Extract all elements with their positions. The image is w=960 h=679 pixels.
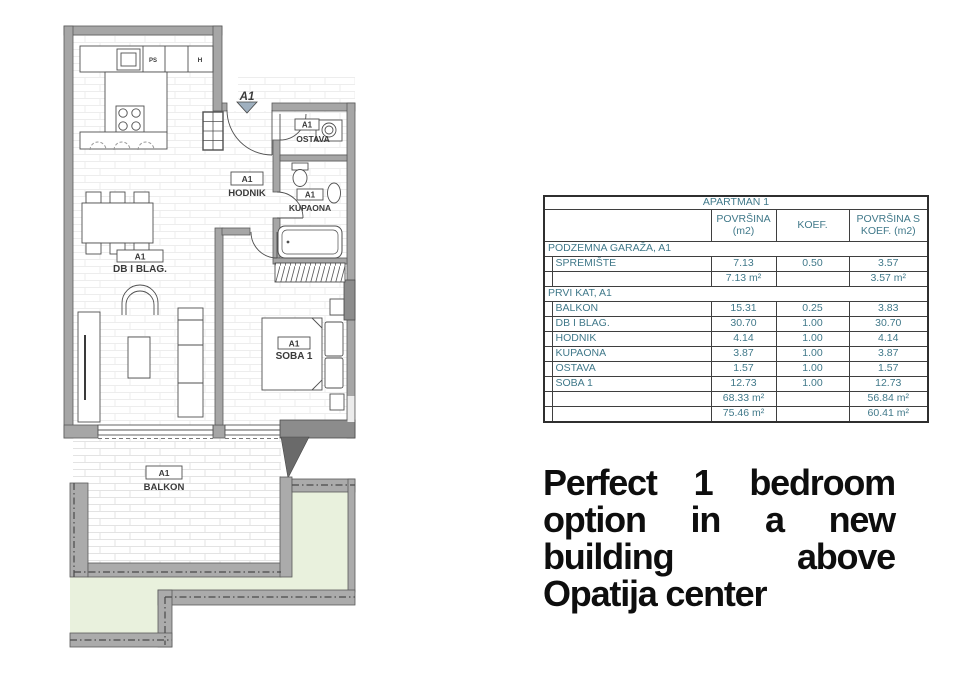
headline-line-3: building above <box>543 538 895 575</box>
gutter-cell <box>544 362 552 377</box>
entrance-marker: A1 <box>237 91 257 113</box>
row-koef: 0.50 <box>776 257 849 272</box>
svg-text:BALKON: BALKON <box>144 482 185 493</box>
subtotal-koef <box>776 272 849 287</box>
row-koef: 1.00 <box>776 317 849 332</box>
header-empty-cell <box>544 210 711 242</box>
floor-plan: PS H <box>0 0 460 679</box>
subtotal-area-koef: 3.57 m² <box>849 272 928 287</box>
subtotal-area-koef: 56.84 m² <box>849 392 928 407</box>
total-name <box>552 407 711 423</box>
row-area: 12.73 <box>711 377 776 392</box>
entry-shelf <box>203 112 223 150</box>
kitchen-ps-label: PS <box>149 58 157 64</box>
right-wall-window <box>348 396 355 422</box>
header-area-line2: (m2) <box>715 226 773 238</box>
row-name: OSTAVA <box>552 362 711 377</box>
header-koef: KOEF. <box>776 210 849 242</box>
svg-text:A1: A1 <box>242 174 253 184</box>
kitchen-island <box>80 132 167 150</box>
subtotal-koef <box>776 392 849 407</box>
row-area-koef: 4.14 <box>849 332 928 347</box>
cooktop <box>116 106 144 133</box>
row-koef: 0.25 <box>776 302 849 317</box>
kitchen-h-label: H <box>198 57 203 64</box>
section-garage-header: PODZEMNA GARAŽA, A1 <box>544 242 928 257</box>
gutter-cell <box>544 317 552 332</box>
svg-text:A1: A1 <box>135 252 146 262</box>
svg-text:A1: A1 <box>305 191 316 200</box>
gutter-cell <box>544 257 552 272</box>
headline-line-1: Perfect 1 bedroom <box>543 464 895 501</box>
row-koef: 1.00 <box>776 347 849 362</box>
row-area: 15.31 <box>711 302 776 317</box>
svg-text:KUPAONA: KUPAONA <box>289 203 331 213</box>
header-area-koef-line1: POVRŠINA S <box>853 214 925 226</box>
row-area-koef: 12.73 <box>849 377 928 392</box>
sofa <box>178 308 203 417</box>
svg-text:HODNIK: HODNIK <box>228 188 266 199</box>
listing-page: PS H <box>0 0 960 679</box>
table-row: KUPAONA 3.87 1.00 3.87 <box>544 347 928 362</box>
gutter-cell <box>544 392 552 407</box>
table-title: APARTMAN 1 <box>544 196 928 210</box>
subtotal-name <box>552 392 711 407</box>
row-koef: 1.00 <box>776 362 849 377</box>
row-name: SOBA 1 <box>552 377 711 392</box>
header-area-koef-line2: KOEF. (m2) <box>853 226 925 238</box>
header-area-koef: POVRŠINA S KOEF. (m2) <box>849 210 928 242</box>
coffee-table <box>128 337 150 378</box>
svg-text:A1: A1 <box>159 468 170 478</box>
apartment-area-table: APARTMAN 1 POVRŠINA (m2) KOEF. POVRŠINA … <box>543 195 929 423</box>
table-title-row: APARTMAN 1 <box>544 196 928 210</box>
headline-line-4: Opatija center <box>543 575 895 612</box>
subtotal-area: 68.33 m² <box>711 392 776 407</box>
header-area-line1: POVRŠINA <box>715 214 773 226</box>
row-name: KUPAONA <box>552 347 711 362</box>
row-name: SPREMIŠTE <box>552 257 711 272</box>
dining-set <box>82 192 153 254</box>
svg-text:A1: A1 <box>289 339 300 349</box>
floor1-subtotal-row: 68.33 m² 56.84 m² <box>544 392 928 407</box>
table-row: DB I BLAG. 30.70 1.00 30.70 <box>544 317 928 332</box>
total-area: 75.46 m² <box>711 407 776 423</box>
table-row: HODNIK 4.14 1.00 4.14 <box>544 332 928 347</box>
row-area-koef: 3.87 <box>849 347 928 362</box>
row-area-koef: 3.83 <box>849 302 928 317</box>
gutter-cell <box>544 302 552 317</box>
headline-line-2: option in a new <box>543 501 895 538</box>
row-area: 1.57 <box>711 362 776 377</box>
wall-wedge <box>281 437 309 478</box>
row-area: 4.14 <box>711 332 776 347</box>
row-area-koef: 30.70 <box>849 317 928 332</box>
svg-text:OSTAVA: OSTAVA <box>296 134 330 144</box>
subtotal-area: 7.13 m² <box>711 272 776 287</box>
balcony-floor <box>73 438 281 565</box>
gutter-cell <box>544 332 552 347</box>
header-area: POVRŠINA (m2) <box>711 210 776 242</box>
row-name: DB I BLAG. <box>552 317 711 332</box>
section-floor1-header-row: PRVI KAT, A1 <box>544 287 928 302</box>
row-name: BALKON <box>552 302 711 317</box>
row-area: 3.87 <box>711 347 776 362</box>
row-koef: 1.00 <box>776 332 849 347</box>
windows <box>98 425 280 435</box>
subtotal-name <box>552 272 711 287</box>
row-area: 30.70 <box>711 317 776 332</box>
bathroom-sink <box>328 183 341 203</box>
table-header-row: POVRŠINA (m2) KOEF. POVRŠINA S KOEF. (m2… <box>544 210 928 242</box>
gutter-cell <box>544 347 552 362</box>
row-area-koef: 3.57 <box>849 257 928 272</box>
total-area-koef: 60.41 m² <box>849 407 928 423</box>
wardrobe <box>275 263 345 282</box>
section-floor1-header: PRVI KAT, A1 <box>544 287 928 302</box>
table-row: BALKON 15.31 0.25 3.83 <box>544 302 928 317</box>
svg-text:DB I BLAG.: DB I BLAG. <box>113 264 167 275</box>
svg-text:SOBA 1: SOBA 1 <box>276 351 313 362</box>
marketing-headline: Perfect 1 bedroom option in a new buildi… <box>543 464 895 612</box>
row-name: HODNIK <box>552 332 711 347</box>
row-koef: 1.00 <box>776 377 849 392</box>
gutter-cell <box>544 407 552 423</box>
svg-text:A1: A1 <box>302 121 313 130</box>
gutter-cell <box>544 272 552 287</box>
entrance-a1-label: A1 <box>239 91 255 103</box>
row-area: 7.13 <box>711 257 776 272</box>
table-row: SOBA 1 12.73 1.00 12.73 <box>544 377 928 392</box>
section-garage-header-row: PODZEMNA GARAŽA, A1 <box>544 242 928 257</box>
table-row: OSTAVA 1.57 1.00 1.57 <box>544 362 928 377</box>
garage-subtotal-row: 7.13 m² 3.57 m² <box>544 272 928 287</box>
floor1-total-row: 75.46 m² 60.41 m² <box>544 407 928 423</box>
toilet <box>292 163 308 187</box>
tv-unit <box>78 312 100 422</box>
bathtub <box>278 226 342 258</box>
row-area-koef: 1.57 <box>849 362 928 377</box>
table-row: SPREMIŠTE 7.13 0.50 3.57 <box>544 257 928 272</box>
total-koef <box>776 407 849 423</box>
gutter-cell <box>544 377 552 392</box>
